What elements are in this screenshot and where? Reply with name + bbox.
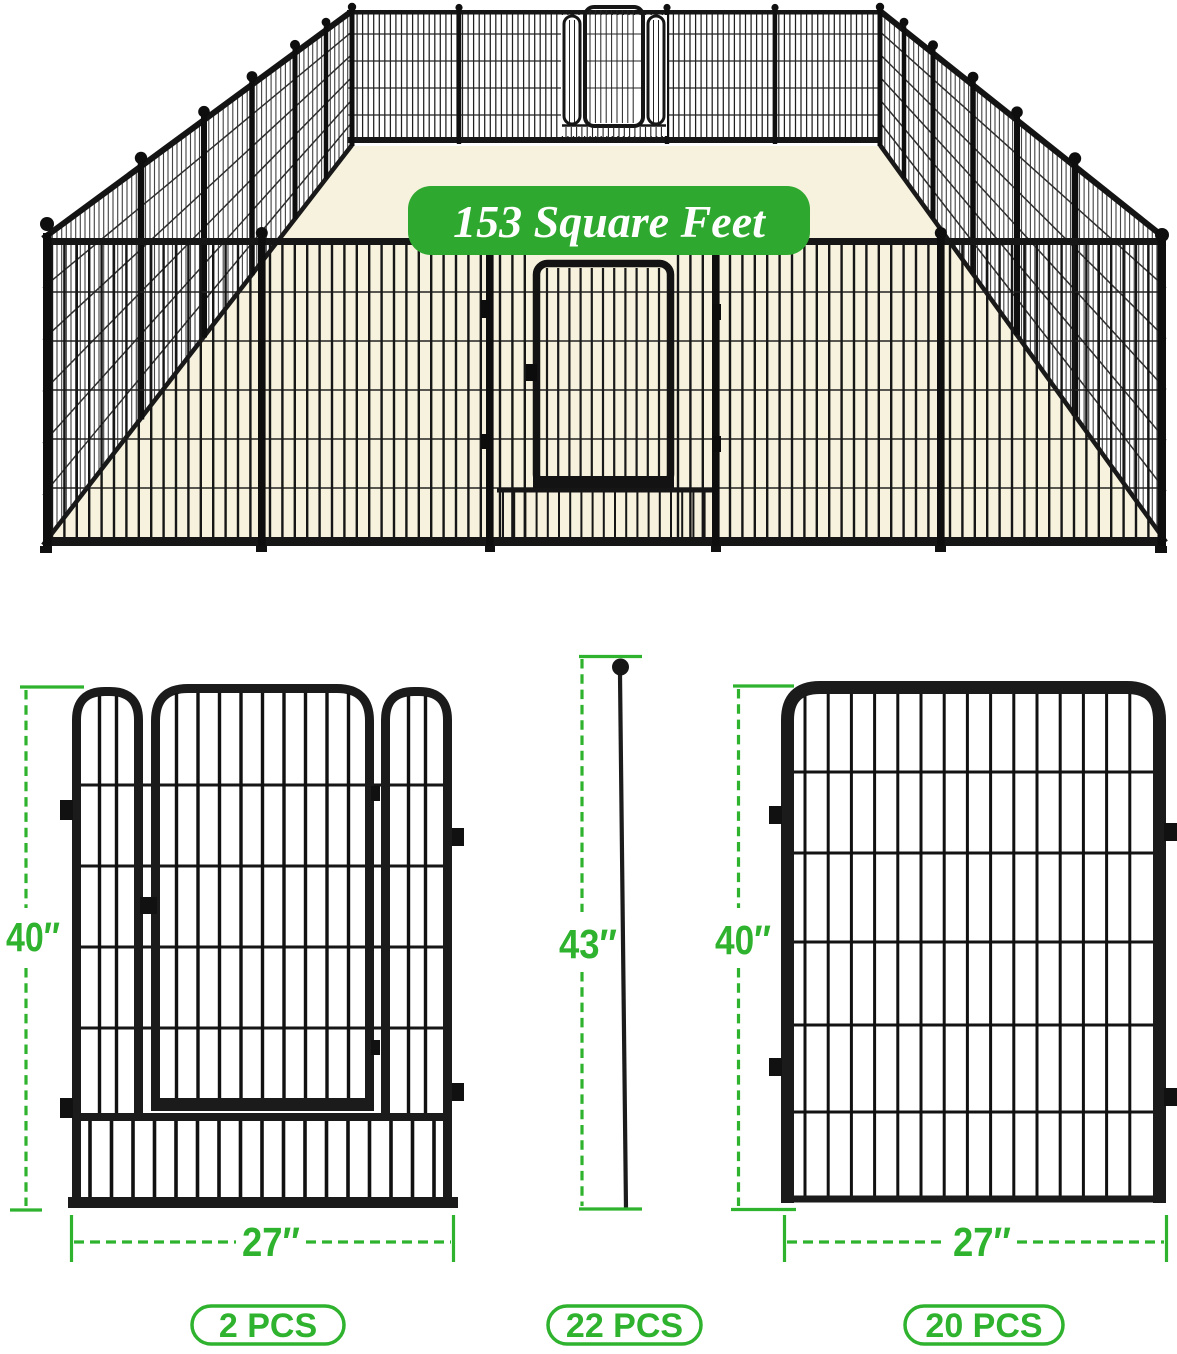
- svg-text:153 Square Feet: 153 Square Feet: [453, 196, 766, 247]
- svg-text:20 PCS: 20 PCS: [925, 1307, 1042, 1345]
- svg-text:43″: 43″: [559, 921, 617, 967]
- svg-text:27″: 27″: [242, 1219, 300, 1265]
- svg-text:40″: 40″: [715, 917, 771, 963]
- svg-text:2 PCS: 2 PCS: [219, 1307, 317, 1345]
- svg-text:40″: 40″: [6, 914, 60, 960]
- svg-text:22 PCS: 22 PCS: [566, 1307, 683, 1345]
- svg-text:27″: 27″: [953, 1219, 1011, 1265]
